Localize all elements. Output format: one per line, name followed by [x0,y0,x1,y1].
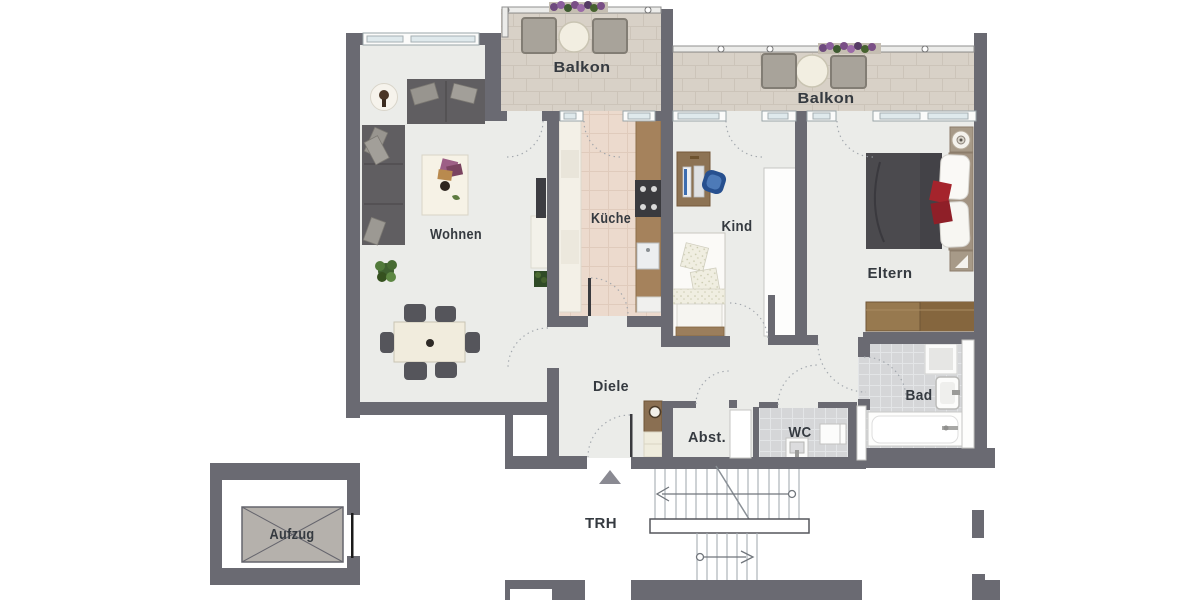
svg-text:Bad: Bad [906,387,933,404]
svg-text:Balkon: Balkon [798,90,855,107]
svg-text:Balkon: Balkon [554,59,611,76]
svg-text:Diele: Diele [593,378,629,395]
svg-text:Wohnen: Wohnen [430,226,482,243]
svg-text:Küche: Küche [591,210,631,227]
svg-text:Kind: Kind [722,218,753,235]
svg-text:Abst.: Abst. [688,429,726,446]
svg-text:Aufzug: Aufzug [270,526,315,543]
svg-text:WC: WC [789,424,812,441]
svg-text:Eltern: Eltern [868,265,913,282]
svg-text:TRH: TRH [585,515,617,532]
